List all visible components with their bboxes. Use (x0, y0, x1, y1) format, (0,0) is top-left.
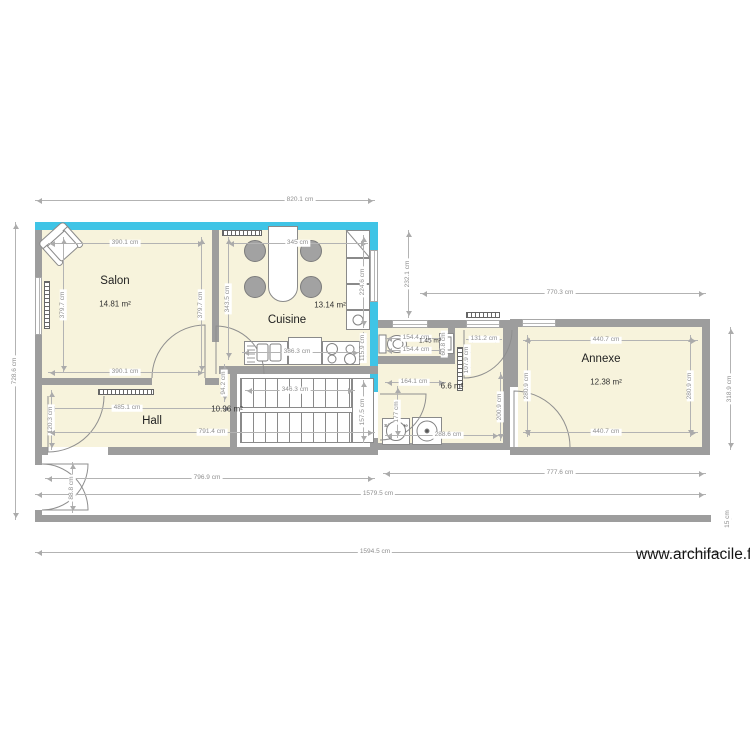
dimension-label: 318.9 cm (727, 373, 734, 404)
dimension-label: 485.1 cm (112, 405, 143, 412)
wall-hall-bottom-b (108, 447, 378, 455)
dimension-label: 88.8 cm (69, 474, 76, 501)
dimension-label: 343.5 cm (225, 283, 232, 314)
stool (300, 276, 322, 298)
radiator-hall (98, 389, 154, 395)
dimension-label: 386.3 cm (282, 349, 313, 356)
wall-annexe-left (510, 327, 518, 387)
room-area-buanderie: 6.6 m² (441, 382, 464, 391)
room-area-annexe: 12.38 m² (590, 378, 622, 387)
dimension-label: 728.6 cm (12, 356, 19, 387)
radiator-degagement-top (466, 312, 500, 318)
dimension-label: 15 cm (725, 508, 732, 530)
dimension-line (35, 200, 375, 201)
wall-corridor-bottom (35, 515, 711, 522)
dimension-label: 820.1 cm (285, 197, 316, 204)
room-label-hall: Hall (142, 415, 162, 427)
dimension-label: 60.8 cm (441, 330, 448, 357)
dimension-label: 200.9 cm (497, 391, 504, 422)
stool (244, 276, 266, 298)
wall-left-lower (35, 335, 42, 455)
window-wc-top (392, 320, 428, 328)
dryer-label: Sèche linge (382, 424, 410, 429)
dimension-label: 115.9 cm (360, 332, 367, 362)
dimension-label: 440.7 cm (591, 337, 622, 344)
dimension-label: 346.3 cm (280, 387, 311, 394)
dimension-label: 770.3 cm (545, 290, 576, 297)
dimension-label: 440.7 cm (591, 429, 622, 436)
room-label-annexe: Annexe (581, 353, 620, 365)
wall-left-upper (35, 230, 42, 277)
wall-cuisine-bottom (219, 366, 378, 374)
wall-salon-bottom-b (205, 378, 219, 385)
room-label-salon: Salon (100, 275, 129, 287)
wall-degagement-right (503, 328, 510, 443)
dimension-label: 1579.5 cm (361, 491, 395, 498)
double-door-leaf-bottom (42, 464, 88, 510)
double-door-leaf-top (42, 464, 88, 510)
dimension-label: 791.4 cm (197, 429, 228, 436)
room-area-wc: 1.45 m² (419, 338, 441, 345)
room-area-salon: 14.81 m² (99, 300, 131, 309)
wall-salon-bottom-a (42, 378, 152, 385)
dimension-label: 232.1 cm (405, 259, 412, 290)
dimension-label: 379.7 cm (60, 290, 67, 321)
dimension-label: 154.4 cm (401, 347, 432, 354)
watermark: www.archifacile.fr (636, 546, 750, 564)
dimension-label: 280.9 cm (687, 371, 694, 402)
dimension-label: 345 cm (285, 240, 310, 247)
floor-plan: Sèche linge (0, 0, 750, 750)
dimension-label: 1594.5 cm (358, 549, 392, 556)
accent-wall-top (35, 222, 378, 230)
room-label-cuisine: Cuisine (268, 314, 306, 326)
stairs-lower-flight (240, 412, 352, 443)
dimension-label: 131.2 cm (469, 336, 500, 343)
radiator-salon (44, 281, 50, 329)
window-degagement-top (466, 320, 500, 328)
dimension-label: 177 cm (394, 399, 401, 424)
wall-annexe-bottom (510, 447, 710, 455)
window-salon-left (35, 277, 42, 335)
dimension-label: 796.9 cm (192, 475, 223, 482)
dimension-label: 379.7 cm (198, 290, 205, 321)
dimension-label: 164.1 cm (399, 379, 430, 386)
room-area-cuisine: 13.14 m² (314, 301, 346, 310)
kitchen-table (268, 226, 298, 302)
dimension-label: 390.1 cm (110, 240, 141, 247)
room-area-hall: 10.96 m² (211, 405, 243, 414)
dimension-label: 777.6 cm (545, 470, 576, 477)
wall-corridor-left-a (35, 455, 42, 465)
wall-annexe-right (702, 319, 710, 455)
dimension-label: 280.9 cm (524, 371, 531, 402)
dimension-label: 157.5 cm (360, 396, 367, 427)
wall-salon-cuisine-divider (212, 230, 219, 342)
dimension-label: 390.1 cm (110, 369, 141, 376)
dimension-label: 224.6 cm (360, 266, 367, 297)
dimension-label: 288.6 cm (433, 432, 464, 439)
dimension-label: 94.2 cm (221, 369, 228, 396)
window-annexe-top (522, 319, 556, 327)
dimension-label: 107.9 cm (464, 345, 471, 376)
window-cuisine-right (370, 250, 378, 302)
wall-hall-bottom-a (42, 447, 48, 455)
